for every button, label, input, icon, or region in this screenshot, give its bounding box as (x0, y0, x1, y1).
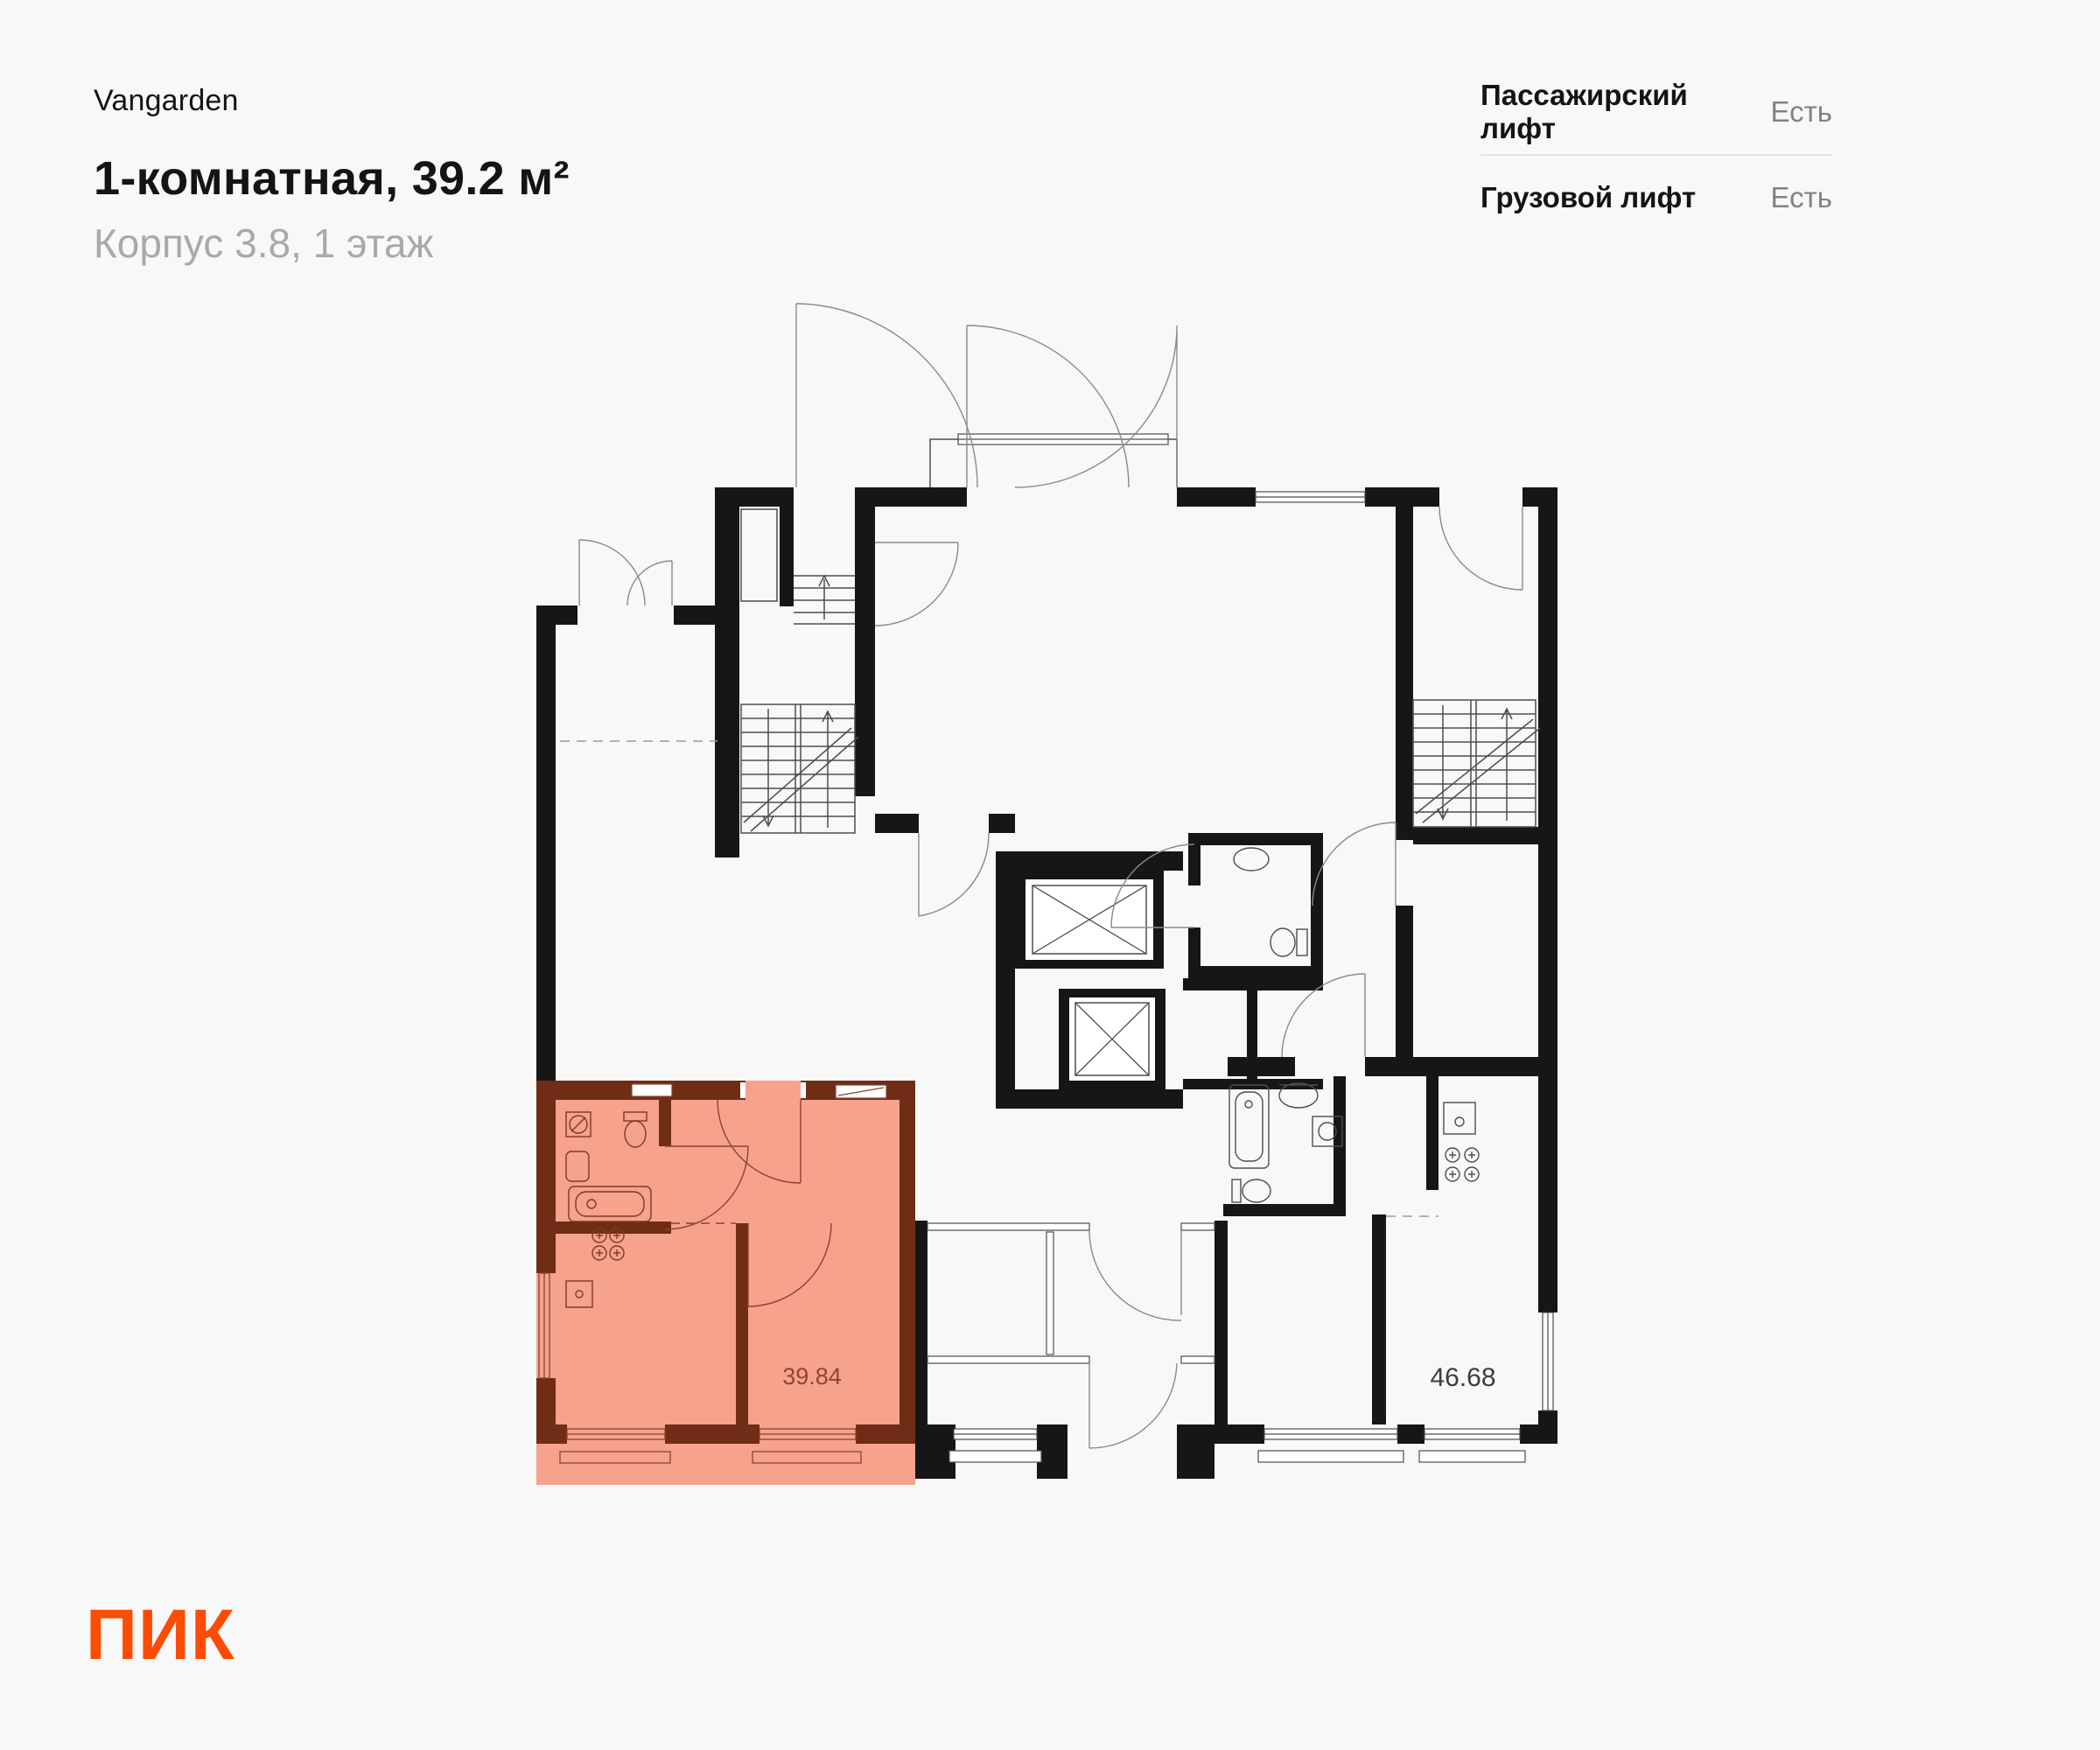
highlighted-area-label: 39.84 (782, 1363, 842, 1389)
toilet-icon (1242, 1179, 1270, 1202)
apartment-card-page: Vangarden 1-комнатная, 39.2 м² Корпус 3.… (0, 0, 2100, 1750)
other-area-label: 46.68 (1430, 1363, 1495, 1392)
stairwell-right (1413, 700, 1540, 827)
fixtures-common (1229, 848, 1479, 1202)
toilet-icon (1270, 928, 1295, 956)
stair-tower (741, 509, 858, 833)
elevator-shaft-1 (1015, 871, 1164, 969)
sink-icon (1234, 848, 1269, 871)
toilet-tank-icon (1297, 929, 1307, 955)
elevator-shaft-2 (1059, 989, 1165, 1089)
highlighted-apartment[interactable]: 39.84 (536, 1081, 915, 1485)
toilet-tank-icon (1232, 1179, 1241, 1202)
floor-plan: 39.84 46.68 (0, 0, 2100, 1750)
pik-logo[interactable]: ПИК (86, 1594, 235, 1676)
kitchen-sink-icon (1444, 1102, 1475, 1134)
highlight-overlay[interactable] (536, 1081, 915, 1485)
stove-icon (1445, 1148, 1479, 1181)
